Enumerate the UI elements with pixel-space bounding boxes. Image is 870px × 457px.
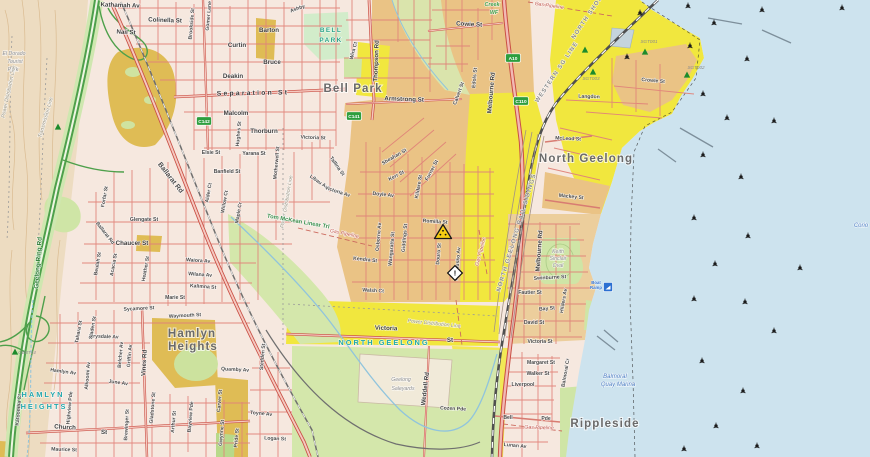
map-label: Separation St bbox=[217, 89, 290, 97]
map-label: Ramp bbox=[590, 285, 602, 290]
map-label: Bell bbox=[503, 415, 513, 421]
route-shield-label: C110 bbox=[515, 99, 527, 105]
route-shield: C141 bbox=[347, 112, 362, 120]
map-label: Glengate St bbox=[130, 217, 159, 223]
map-label: Yarana St bbox=[242, 151, 266, 157]
map-label: Barton bbox=[259, 27, 279, 34]
map-label: Walsh Ct bbox=[362, 287, 384, 294]
map-label: Vines Rd bbox=[140, 349, 148, 376]
map-label: Armstrong St bbox=[384, 95, 424, 103]
map-label: HEIGHTS bbox=[21, 402, 68, 411]
map-label: Banfield St bbox=[214, 169, 241, 175]
map-label: Corio bbox=[854, 223, 869, 229]
map-label: Hamlyn bbox=[168, 328, 216, 340]
map-label: Logan St bbox=[264, 435, 286, 442]
map-label: Cowie St bbox=[456, 20, 482, 28]
map-label: Victoria St bbox=[300, 135, 326, 142]
route-shield-label: A10 bbox=[509, 56, 518, 62]
boat-ramp-icon bbox=[604, 283, 613, 292]
map-label: Deakin bbox=[223, 73, 244, 80]
map-label: Elsie St bbox=[202, 150, 221, 156]
map-label: Curtin bbox=[228, 42, 246, 49]
map-label: Church bbox=[54, 423, 76, 431]
map-label: NORTH GEELONG bbox=[338, 338, 429, 347]
map-label: Margaret St bbox=[527, 360, 555, 366]
route-shield: C142 bbox=[197, 117, 212, 125]
map-label: Victoria bbox=[375, 325, 398, 333]
map-label: Rippleside bbox=[570, 418, 639, 430]
map-label: BELL bbox=[320, 27, 342, 34]
map-label: El Dorado bbox=[2, 51, 25, 57]
map-label: Balmoral bbox=[603, 374, 627, 380]
map-label: Fautier St bbox=[518, 290, 542, 296]
map-label: David St bbox=[524, 320, 545, 326]
map-label: North Geelong bbox=[539, 153, 633, 165]
map-label: WF bbox=[490, 10, 499, 16]
map-label: Pde bbox=[541, 416, 551, 422]
map-label: Saleyards bbox=[391, 386, 414, 392]
route-shield: C110 bbox=[514, 97, 529, 105]
map-label: Maurice St bbox=[51, 447, 77, 454]
map-label: SGT001 bbox=[640, 39, 658, 44]
map-label: SGT003 bbox=[582, 76, 600, 81]
map-label: Colinella St bbox=[148, 16, 182, 24]
map-label: Nail St bbox=[116, 29, 136, 37]
map-label: Marie St bbox=[165, 295, 185, 301]
map-label: Bruce bbox=[263, 59, 281, 66]
map-label: Kathamah Av bbox=[100, 1, 140, 9]
route-shield-label: C142 bbox=[198, 119, 210, 125]
topographic-map: El DoradoTouristParkPower Distribution L… bbox=[0, 0, 870, 457]
map-label: St bbox=[447, 337, 453, 344]
map-label: Gas Pipeline bbox=[524, 424, 554, 431]
map-label: Geelong bbox=[391, 377, 411, 383]
map-label: SGT002 bbox=[687, 65, 705, 70]
map-label: Victoria St bbox=[527, 339, 552, 345]
route-shield-label: C141 bbox=[348, 114, 360, 120]
map-label: Thompson Rd bbox=[372, 40, 380, 82]
map-label: HAMLYN bbox=[22, 390, 65, 399]
map-label: Langdon bbox=[578, 94, 600, 101]
map-label: Bell Park bbox=[323, 83, 382, 95]
map-label: Heights bbox=[168, 341, 218, 353]
map-label: Creek bbox=[485, 2, 501, 8]
route-shield: A10 bbox=[506, 54, 521, 62]
map-label: GBBT14 bbox=[18, 350, 36, 355]
map-label: Keith bbox=[552, 249, 564, 255]
map-label: PARK bbox=[319, 37, 342, 44]
incident-icon-glyph: ! bbox=[454, 269, 457, 278]
map-label: St bbox=[101, 429, 108, 436]
map-label: Thorburn bbox=[250, 128, 278, 135]
map-label: Quay Marina bbox=[601, 382, 636, 388]
map-label: Tourist bbox=[7, 59, 23, 65]
map-label: Oval bbox=[553, 263, 565, 269]
map-label: Sinclair bbox=[549, 256, 566, 262]
map-label: Walker St bbox=[526, 371, 549, 377]
map-label: Chaucer St bbox=[116, 240, 149, 247]
map-label: Liverpool bbox=[512, 382, 536, 388]
map-label: Malcolm bbox=[224, 110, 249, 117]
map-canvas[interactable]: El DoradoTouristParkPower Distribution L… bbox=[0, 0, 870, 457]
